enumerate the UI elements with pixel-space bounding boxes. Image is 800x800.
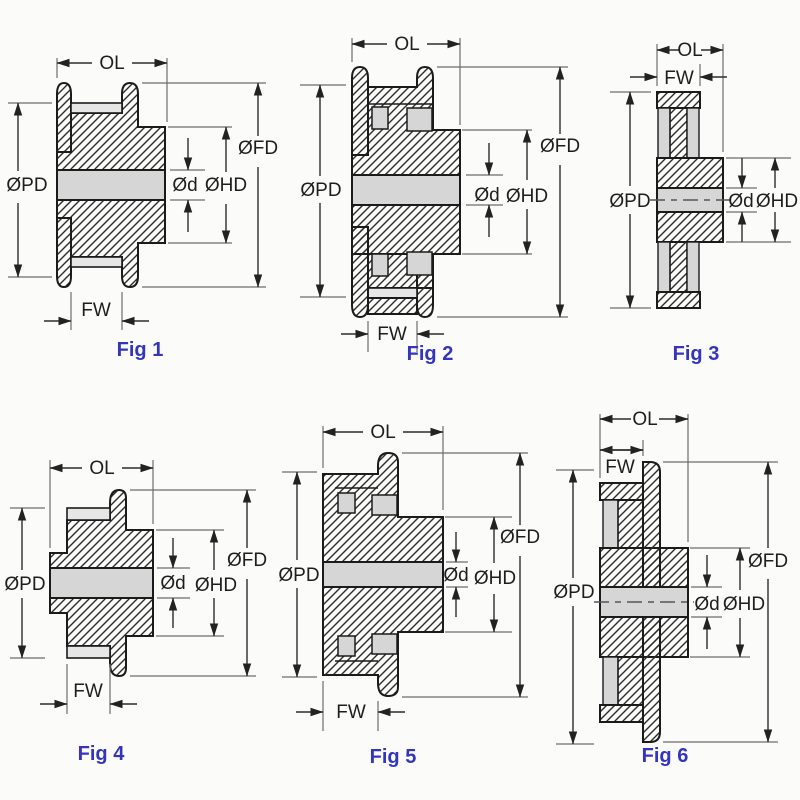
pulley-diagram-sheet: OL ØPD ØFD ØHD Ød FW Fig 1 — [0, 0, 800, 800]
dim-label-fd: ØFD — [500, 527, 540, 548]
dim-label-fd: ØFD — [238, 138, 278, 159]
dim-label-ol: OL — [370, 422, 395, 443]
dim-label-fd: ØFD — [540, 136, 580, 157]
figure-4: OL ØPD ØFD ØHD Ød FW Fig 4 — [4, 458, 267, 765]
bore-band — [50, 568, 153, 598]
dim-label-ol: OL — [677, 40, 702, 61]
dim-label-fw: FW — [336, 702, 366, 723]
figure-1: OL ØPD ØFD ØHD Ød FW Fig 1 — [6, 53, 278, 361]
dim-label-d: Ød — [172, 175, 197, 196]
figure-caption: Fig 4 — [78, 743, 126, 765]
dim-label-pd: ØPD — [553, 582, 594, 603]
pulley-cross-section-4 — [50, 490, 153, 676]
dim-label-ol: OL — [99, 53, 124, 74]
pulley-cross-section-5 — [323, 453, 443, 696]
dim-label-d: Ød — [160, 573, 185, 594]
diagram-canvas: OL ØPD ØFD ØHD Ød FW Fig 1 — [0, 0, 800, 800]
dim-label-hd: ØHD — [474, 568, 516, 589]
figure-3: OL FW ØPD ØHD Ød Fig 3 — [609, 40, 798, 365]
dim-label-pd: ØPD — [278, 565, 319, 586]
pulley-cross-section-2 — [352, 67, 460, 317]
dim-label-pd: ØPD — [4, 574, 45, 595]
dim-label-hd: ØHD — [506, 186, 548, 207]
dim-label-d: Ød — [694, 594, 719, 615]
figure-2: OL ØPD ØFD ØHD Ød FW Fig 2 — [300, 34, 580, 365]
dim-label-hd: ØHD — [205, 175, 247, 196]
dim-label-fw: FW — [73, 681, 103, 702]
dim-label-pd: ØPD — [300, 180, 341, 201]
dim-label-hd: ØHD — [195, 575, 237, 596]
dim-label-fw: FW — [377, 324, 407, 345]
dim-label-fw: FW — [664, 68, 694, 89]
figure-5: OL ØPD ØFD ØHD Ød FW Fig 5 — [278, 422, 540, 768]
dim-label-fd: ØFD — [227, 550, 267, 571]
dim-label-fd: ØFD — [748, 551, 788, 572]
bore-band — [323, 562, 443, 587]
dim-label-ol: OL — [632, 409, 657, 430]
bore-band — [57, 170, 165, 200]
dim-label-ol: OL — [89, 458, 114, 479]
figure-6: OL FW ØPD ØFD ØHD Ød Fig 6 — [553, 409, 788, 767]
dim-label-hd: ØHD — [723, 594, 765, 615]
figure-caption: Fig 6 — [642, 745, 689, 767]
dim-label-fw: FW — [605, 457, 635, 478]
dim-label-pd: ØPD — [6, 175, 47, 196]
figure-caption: Fig 5 — [370, 746, 417, 768]
dim-label-fw: FW — [81, 300, 111, 321]
dim-label-d: Ød — [728, 191, 753, 212]
pulley-cross-section-6 — [594, 462, 694, 742]
dim-label-pd: ØPD — [609, 191, 650, 212]
bore-band — [352, 175, 460, 205]
dim-label-ol: OL — [394, 34, 419, 55]
dim-label-hd: ØHD — [756, 191, 798, 212]
pulley-cross-section-1 — [57, 83, 165, 287]
page: { "sheet": { "description": "Timing pull… — [0, 0, 800, 800]
figure-caption: Fig 1 — [117, 339, 164, 361]
figure-caption: Fig 3 — [673, 343, 720, 365]
figure-caption: Fig 2 — [407, 343, 454, 365]
pulley-cross-section-3 — [650, 92, 730, 308]
dim-label-d: Ød — [443, 565, 468, 586]
dim-label-d: Ød — [474, 185, 499, 206]
